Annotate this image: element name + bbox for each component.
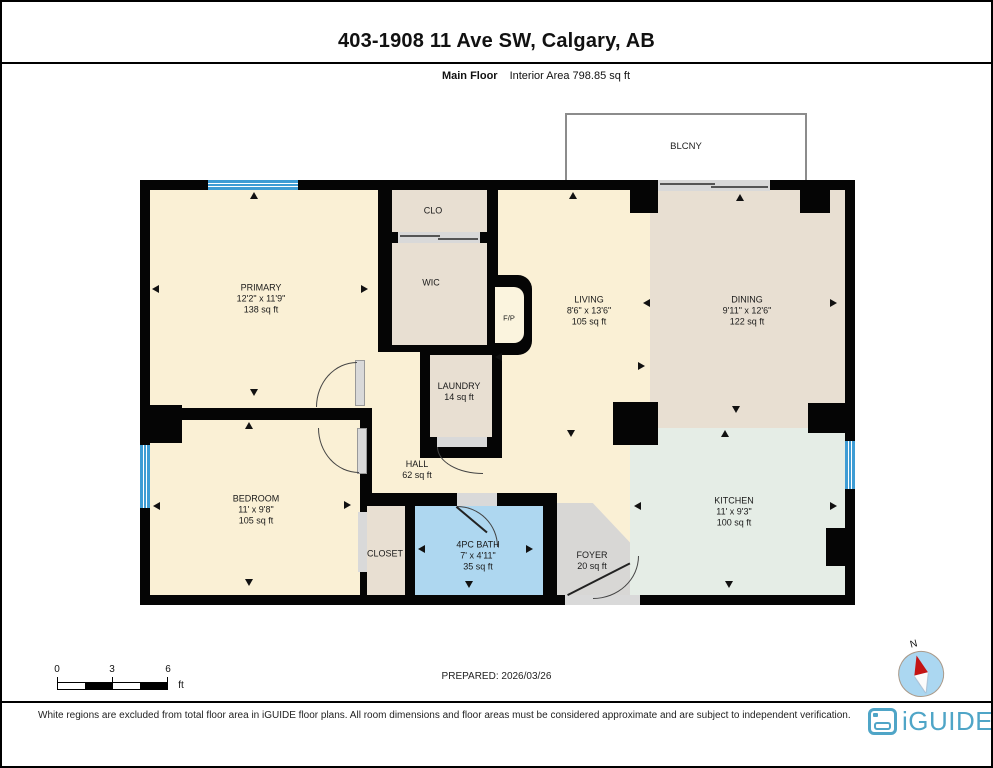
dimension-arrow-icon <box>465 581 473 588</box>
room-area: 105 sq ft <box>567 317 611 328</box>
room-name: CLOSET <box>367 549 403 560</box>
room-label-foyer: FOYER 20 sq ft <box>576 550 607 572</box>
closet-slider-door <box>358 512 367 572</box>
dimension-arrow-icon <box>638 362 645 370</box>
room-label-kitchen: KITCHEN 11' x 9'3" 100 sq ft <box>714 496 754 529</box>
wall-segment <box>826 528 845 566</box>
compass-rotation: N <box>886 633 953 703</box>
room-area: 122 sq ft <box>723 317 772 328</box>
room-name: FOYER <box>576 550 607 561</box>
brand-name: iGUIDE <box>902 706 993 737</box>
dimension-arrow-icon <box>250 192 258 199</box>
room-area: 35 sq ft <box>456 562 499 573</box>
balcony-slider-door <box>658 180 770 191</box>
wall-pillar <box>613 402 658 445</box>
dimension-arrow-icon <box>736 194 744 201</box>
iguide-logo-dot <box>873 713 878 717</box>
room-label-primary: PRIMARY 12'2" x 11'9" 138 sq ft <box>237 283 286 316</box>
dimension-arrow-icon <box>567 430 575 437</box>
bath-door-gap <box>457 493 497 506</box>
window <box>140 445 150 508</box>
dimension-arrow-icon <box>721 430 729 437</box>
slider-line <box>400 235 440 237</box>
dimension-arrow-icon <box>495 353 502 361</box>
header-divider <box>0 62 993 64</box>
room-dims: 7' x 4'11" <box>456 551 499 562</box>
room-dims: 8'6" x 13'6" <box>567 306 611 317</box>
room-area: 62 sq ft <box>402 470 432 481</box>
prepared-date: PREPARED: 2026/03/26 <box>0 671 993 682</box>
room-label-wic: WIC <box>422 278 440 289</box>
dimension-arrow-icon <box>245 579 253 586</box>
slider-line <box>711 186 768 188</box>
compass-circle-icon <box>893 646 949 702</box>
room-label-bath: 4PC BATH 7' x 4'11" 35 sq ft <box>456 540 499 573</box>
dimension-arrow-icon <box>830 299 837 307</box>
dimension-arrow-icon <box>344 501 351 509</box>
room-area: 14 sq ft <box>438 392 481 403</box>
room-name: PRIMARY <box>237 283 286 294</box>
wic-slider-door <box>398 232 480 243</box>
room-label-bedroom: BEDROOM 11' x 9'8" 105 sq ft <box>233 494 280 527</box>
dimension-arrow-icon <box>732 406 740 413</box>
room-area: 20 sq ft <box>576 561 607 572</box>
room-name: KITCHEN <box>714 496 754 507</box>
room-name: DINING <box>723 295 772 306</box>
dimension-arrow-icon <box>361 285 368 293</box>
room-area: 105 sq ft <box>233 516 280 527</box>
room-name: 4PC BATH <box>456 540 499 551</box>
room-dims: 11' x 9'8" <box>233 505 280 516</box>
room-name: LAUNDRY <box>438 381 481 392</box>
room-wic <box>392 243 487 345</box>
room-name: BEDROOM <box>233 494 280 505</box>
wall-segment <box>800 190 830 213</box>
room-label-laundry: LAUNDRY 14 sq ft <box>438 381 481 403</box>
room-dims: 12'2" x 11'9" <box>237 294 286 305</box>
dimension-arrow-icon <box>643 299 650 307</box>
page-title: 403-1908 11 Ave SW, Calgary, AB <box>0 30 993 53</box>
dimension-arrow-icon <box>418 545 425 553</box>
disclaimer-text: White regions are excluded from total fl… <box>38 710 851 721</box>
dimension-arrow-icon <box>153 502 160 510</box>
compass-needle-south-icon <box>914 672 932 694</box>
floor-plan: F/P PRIMA <box>140 180 855 605</box>
slider-line <box>438 238 478 240</box>
room-balcony: BLCNY <box>565 113 807 189</box>
room-label-fireplace: F/P <box>503 313 515 324</box>
slider-line <box>660 183 715 185</box>
window <box>845 441 855 489</box>
room-dims: 11' x 9'3" <box>714 507 754 518</box>
iguide-logo-icon <box>868 708 897 735</box>
room-name: WIC <box>422 278 440 289</box>
compass: N <box>894 638 948 704</box>
room-name: CLO <box>424 206 443 217</box>
dimension-arrow-icon <box>725 581 733 588</box>
room-dims: 9'11" x 12'6" <box>723 306 772 317</box>
room-label-hall: HALL 62 sq ft <box>402 459 432 481</box>
dimension-arrow-icon <box>634 502 641 510</box>
room-label-balcony: BLCNY <box>567 141 805 152</box>
room-label-clo: CLO <box>424 206 443 217</box>
scale-bar-ruler <box>57 682 168 690</box>
dimension-arrow-icon <box>830 502 837 510</box>
dimension-arrow-icon <box>569 192 577 199</box>
dimension-arrow-icon <box>245 422 253 429</box>
interior-area-label: Interior Area 798.85 sq ft <box>510 70 630 82</box>
wall-segment <box>150 405 182 443</box>
dimension-arrow-icon <box>526 545 533 553</box>
scale-bar-segment <box>85 683 113 689</box>
room-area: 138 sq ft <box>237 305 286 316</box>
room-label-dining: DINING 9'11" x 12'6" 122 sq ft <box>723 295 772 328</box>
dimension-arrow-icon <box>152 285 159 293</box>
footer-divider <box>0 701 993 703</box>
scale-bar-segment <box>140 683 167 689</box>
room-name: LIVING <box>567 295 611 306</box>
window <box>208 180 298 190</box>
laundry-door-sill <box>437 437 487 447</box>
wall-segment <box>630 190 658 213</box>
room-name: HALL <box>402 459 432 470</box>
brand-logo: iGUIDE <box>868 706 993 737</box>
floor-label: Main Floor <box>442 70 498 82</box>
dimension-arrow-icon <box>250 389 258 396</box>
room-label-living: LIVING 8'6" x 13'6" 105 sq ft <box>567 295 611 328</box>
wall-segment <box>808 403 845 433</box>
iguide-logo-inner <box>874 722 891 730</box>
floor-subheader: Main Floor Interior Area 798.85 sq ft <box>442 70 630 82</box>
room-area: 100 sq ft <box>714 518 754 529</box>
room-label-closet: CLOSET <box>367 549 403 560</box>
